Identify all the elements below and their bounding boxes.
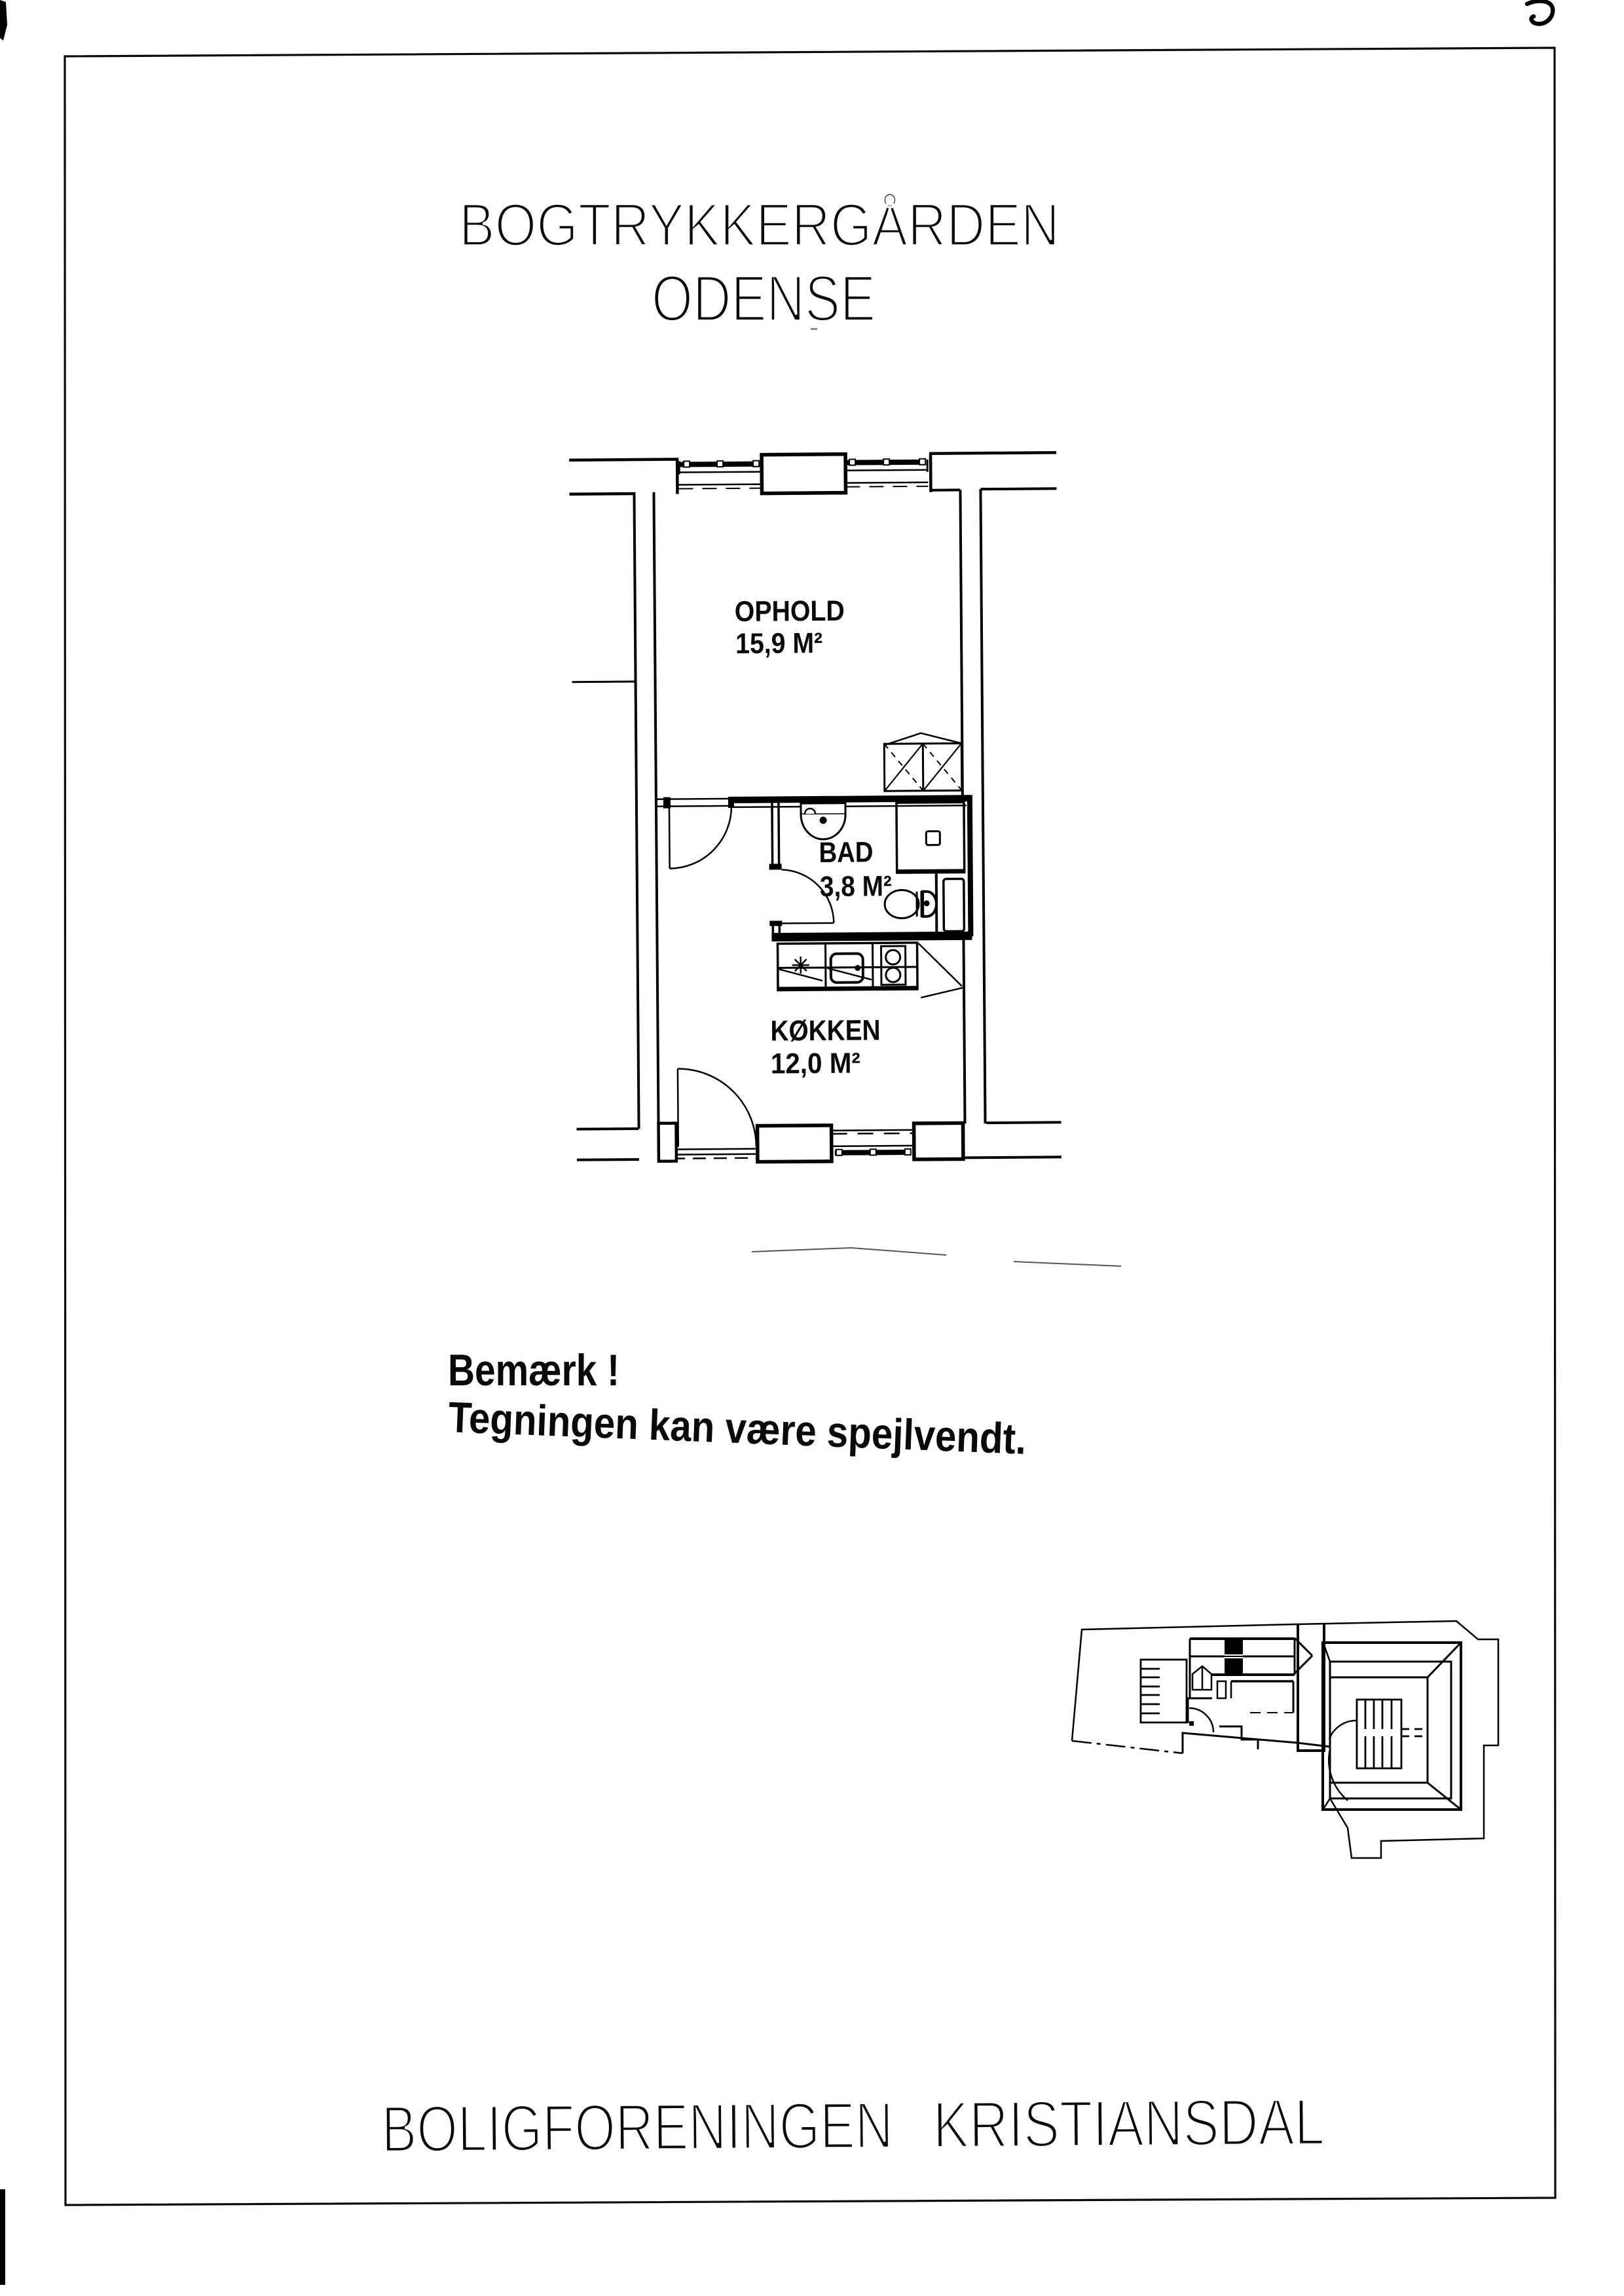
svg-text:OPHOLD: OPHOLD [735,595,845,628]
svg-text:BAD: BAD [819,836,873,869]
svg-text:3,8 M²: 3,8 M² [820,870,892,903]
svg-text:Bemærk !: Bemærk ! [448,1345,619,1395]
svg-text:12,0 M²: 12,0 M² [771,1048,860,1080]
svg-text:KRISTIANSDAL: KRISTIANSDAL [932,2085,1325,2162]
svg-text:KØKKEN: KØKKEN [770,1014,880,1047]
svg-text:ODENSE: ODENSE [652,262,876,335]
svg-text:BOGTRYKKERGÅRDEN: BOGTRYKKERGÅRDEN [459,192,1060,259]
svg-text:15,9 M²: 15,9 M² [735,627,822,660]
svg-text:BOLIGFORENINGEN: BOLIGFORENINGEN [381,2089,893,2166]
